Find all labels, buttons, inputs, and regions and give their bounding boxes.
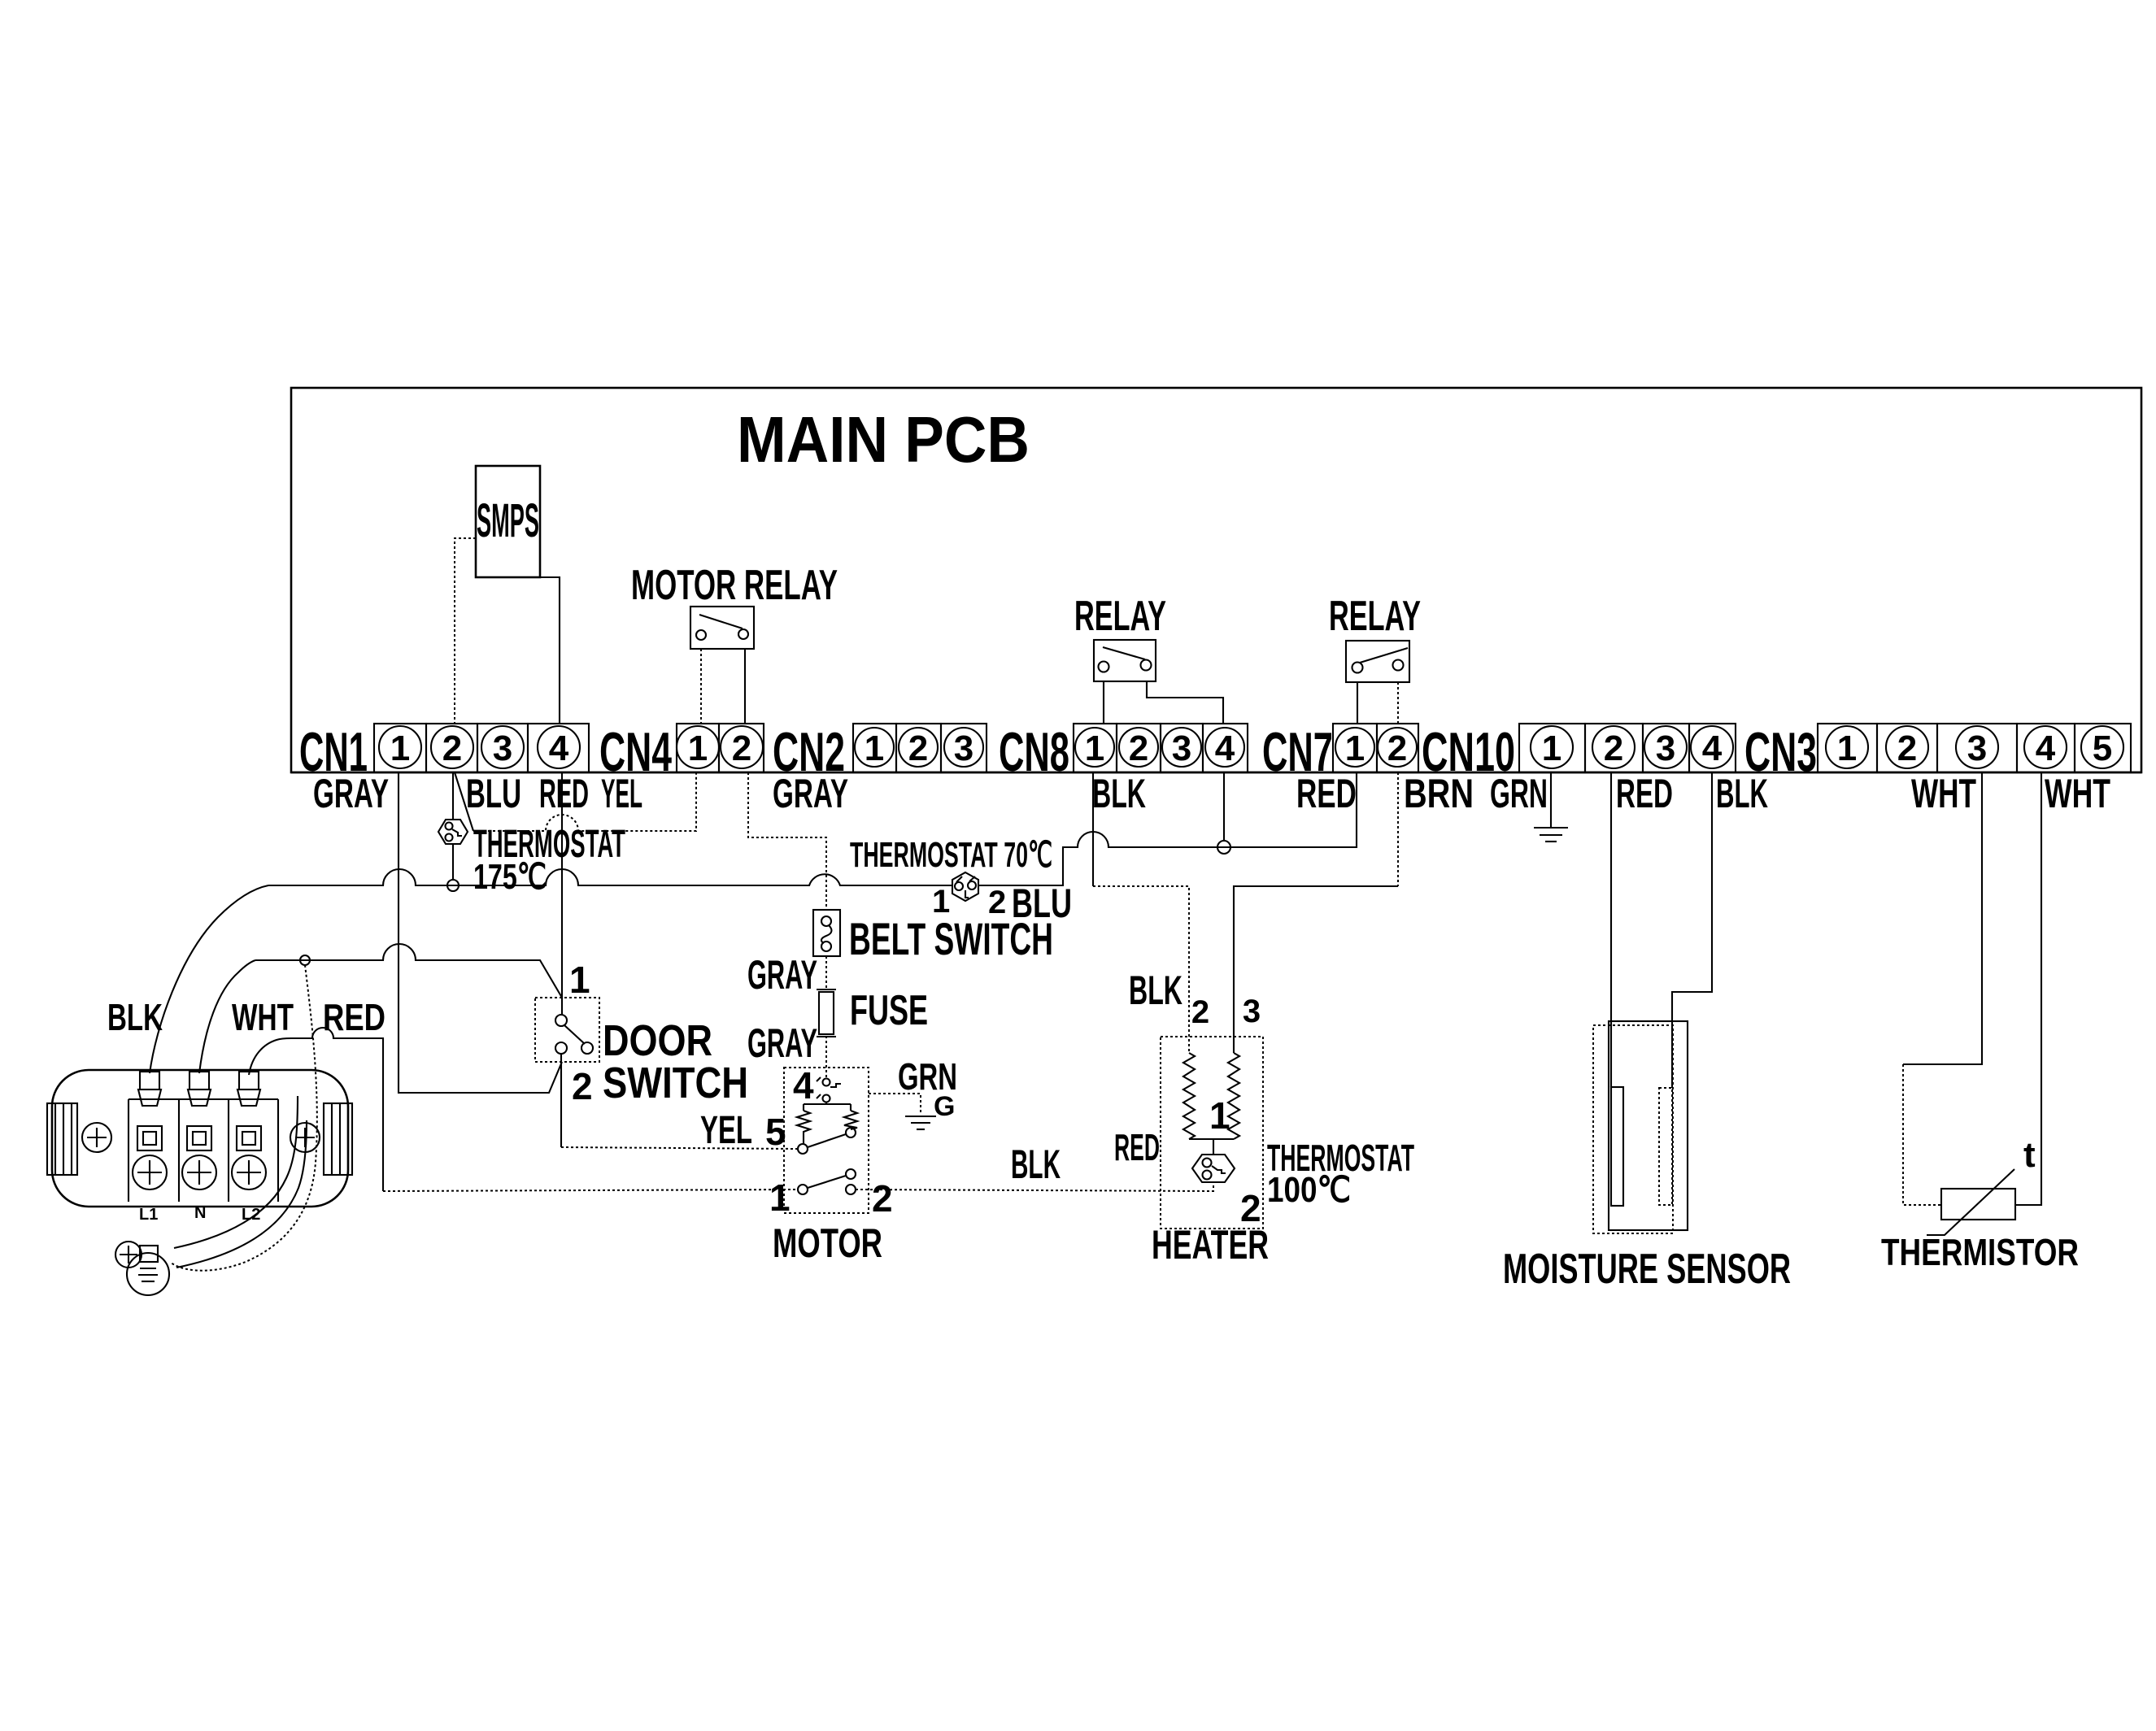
svg-text:100℃: 100℃: [1267, 1170, 1351, 1210]
svg-text:BLK: BLK: [107, 996, 163, 1038]
svg-text:BRN: BRN: [1404, 771, 1474, 816]
svg-text:GRAY: GRAY: [313, 771, 389, 816]
svg-text:RELAY: RELAY: [1074, 593, 1166, 640]
svg-text:YEL: YEL: [601, 771, 642, 816]
svg-text:1: 1: [1542, 728, 1561, 768]
svg-text:3: 3: [1967, 728, 1987, 768]
svg-text:3: 3: [1243, 994, 1261, 1029]
svg-text:1: 1: [1345, 728, 1365, 768]
svg-text:WHT: WHT: [232, 996, 294, 1038]
svg-text:RELAY: RELAY: [1329, 593, 1421, 640]
svg-text:GRAY: GRAY: [747, 1020, 817, 1066]
svg-text:BELT SWITCH: BELT SWITCH: [849, 913, 1053, 964]
svg-text:SMPS: SMPS: [477, 494, 539, 547]
svg-text:BLU: BLU: [466, 771, 521, 816]
svg-text:175℃: 175℃: [473, 857, 547, 897]
svg-text:GRAY: GRAY: [747, 952, 817, 998]
svg-text:t: t: [2023, 1135, 2036, 1175]
svg-text:5: 5: [2093, 728, 2112, 768]
svg-text:MAIN PCB: MAIN PCB: [737, 403, 1030, 476]
svg-text:THERMOSTAT 70℃: THERMOSTAT 70℃: [850, 835, 1052, 875]
svg-text:1: 1: [688, 728, 708, 768]
svg-text:BLK: BLK: [1129, 968, 1183, 1013]
svg-text:MOTOR: MOTOR: [773, 1220, 882, 1266]
svg-text:1: 1: [1085, 728, 1104, 768]
svg-text:2: 2: [442, 728, 462, 768]
svg-text:MOISTURE SENSOR: MOISTURE SENSOR: [1503, 1246, 1791, 1293]
svg-text:CN8: CN8: [999, 721, 1069, 783]
svg-text:2: 2: [908, 728, 928, 768]
svg-text:2: 2: [732, 728, 751, 768]
svg-text:RED: RED: [1616, 771, 1673, 816]
svg-text:G: G: [934, 1091, 955, 1122]
svg-text:WHT: WHT: [1911, 771, 1976, 816]
svg-text:2: 2: [1897, 728, 1917, 768]
svg-text:3: 3: [493, 728, 512, 768]
svg-text:3: 3: [1656, 728, 1675, 768]
svg-text:MOTOR RELAY: MOTOR RELAY: [631, 562, 838, 609]
svg-text:THERMISTOR: THERMISTOR: [1881, 1231, 2079, 1273]
svg-text:2: 2: [1387, 728, 1407, 768]
svg-text:3: 3: [954, 728, 973, 768]
svg-text:HEATER: HEATER: [1152, 1222, 1269, 1268]
svg-text:2: 2: [1191, 994, 1209, 1030]
svg-text:2: 2: [872, 1177, 893, 1220]
svg-text:4: 4: [1215, 728, 1235, 768]
svg-text:SWITCH: SWITCH: [603, 1059, 748, 1107]
svg-text:1: 1: [569, 959, 590, 1001]
svg-text:2: 2: [572, 1065, 593, 1107]
svg-text:1: 1: [1837, 728, 1857, 768]
svg-text:L1: L1: [139, 1206, 158, 1224]
svg-text:GRAY: GRAY: [773, 771, 848, 816]
svg-text:FUSE: FUSE: [850, 987, 928, 1034]
svg-text:4: 4: [793, 1064, 814, 1107]
svg-text:1: 1: [1209, 1094, 1230, 1137]
svg-text:1: 1: [769, 1176, 791, 1219]
svg-text:BLK: BLK: [1092, 771, 1146, 816]
svg-text:BLK: BLK: [1011, 1142, 1061, 1187]
svg-text:RED: RED: [323, 996, 385, 1038]
svg-text:WHT: WHT: [2045, 771, 2110, 816]
svg-text:4: 4: [549, 728, 569, 768]
svg-text:N: N: [194, 1204, 206, 1222]
svg-text:L2: L2: [242, 1206, 260, 1224]
svg-text:1: 1: [865, 728, 884, 768]
svg-text:YEL: YEL: [700, 1109, 752, 1152]
svg-text:4: 4: [1702, 728, 1723, 768]
svg-text:RED: RED: [1296, 771, 1357, 816]
svg-text:1: 1: [390, 728, 410, 768]
svg-text:BLK: BLK: [1716, 771, 1768, 816]
svg-text:2: 2: [1129, 728, 1148, 768]
svg-text:3: 3: [1172, 728, 1191, 768]
svg-text:DOOR: DOOR: [603, 1016, 712, 1065]
svg-text:GRN: GRN: [1490, 771, 1548, 816]
svg-text:5: 5: [765, 1111, 786, 1153]
svg-text:4: 4: [2036, 728, 2056, 768]
svg-text:RED: RED: [1114, 1126, 1160, 1168]
svg-text:2: 2: [1604, 728, 1623, 768]
svg-text:RED: RED: [539, 771, 589, 816]
